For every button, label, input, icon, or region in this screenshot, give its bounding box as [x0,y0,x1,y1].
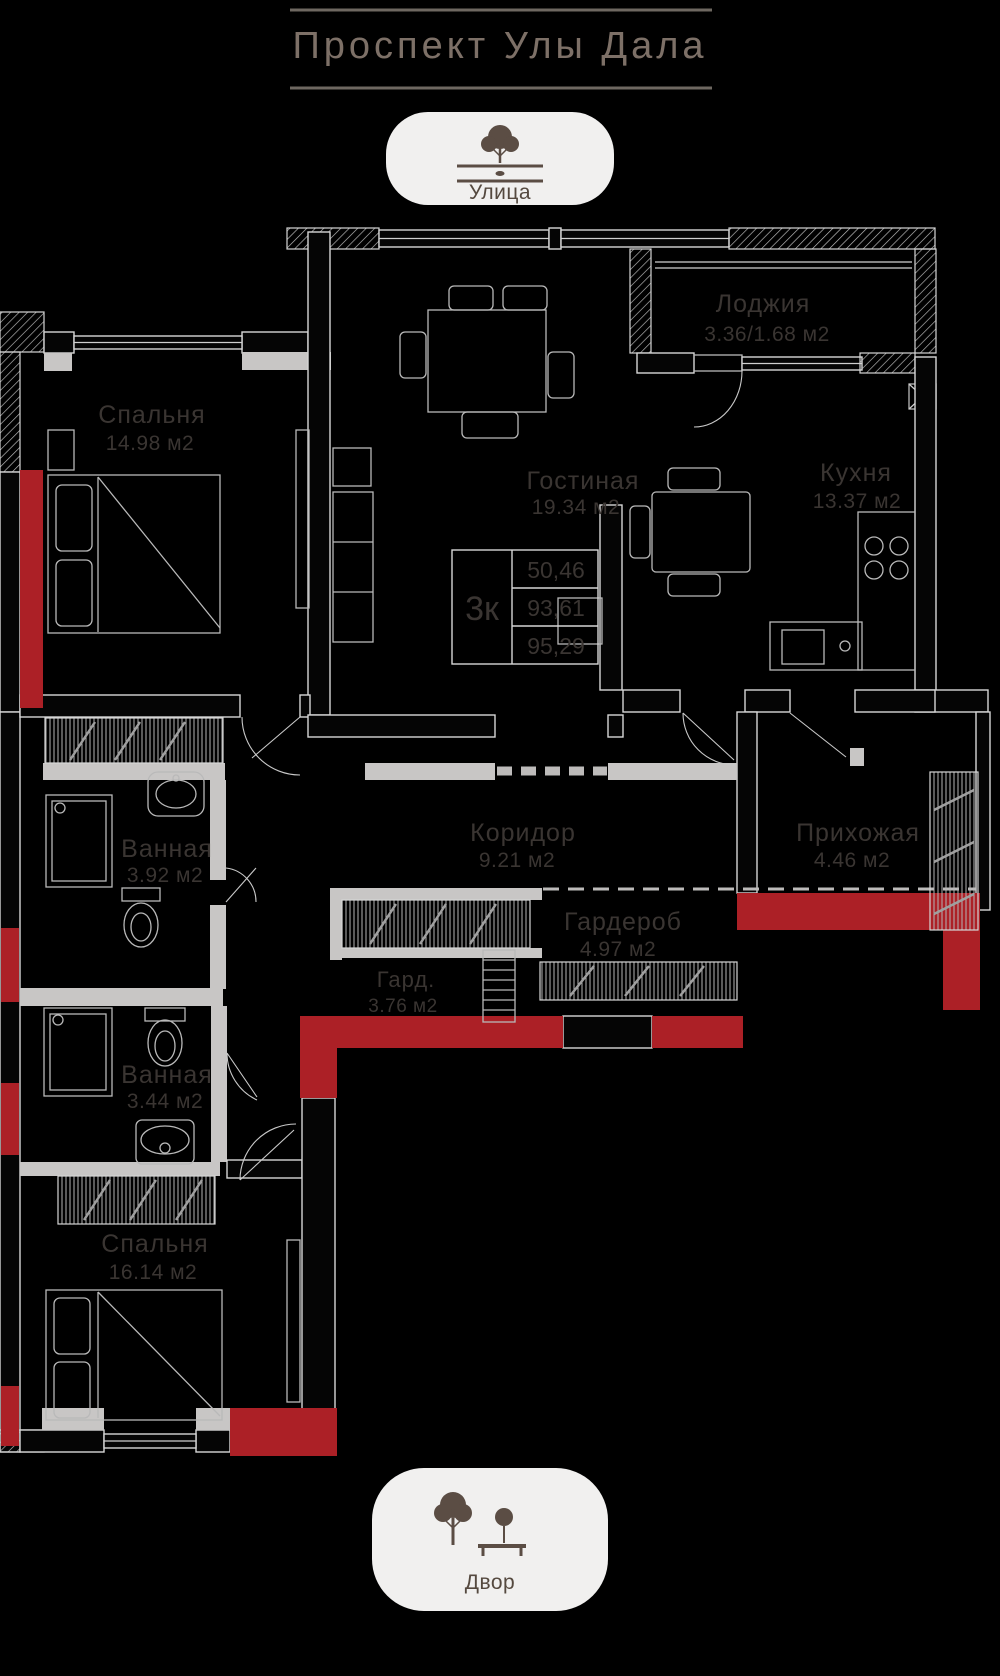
sofa-living [333,448,373,642]
closet-wardrobe-small [342,900,530,948]
room-name-bedroom1: Спальня [98,401,205,429]
room-area-bath2: 3.44 м2 [127,1090,203,1113]
toilet-bath2 [145,1008,185,1066]
room-area-bedroom2: 16.14 м2 [109,1261,198,1284]
header: Проспект Улы Дала [290,10,712,88]
door-bath2 [227,1053,257,1100]
room-area-hallway: 4.46 м2 [814,849,890,872]
closet-corridor-left [45,718,223,763]
basin-bath2 [136,1120,194,1164]
room-name-bath1: Ванная [121,835,213,863]
room-area-loggia: 3.36/1.68 м2 [704,323,830,346]
door-balcony [694,371,742,427]
room-name-living: Гостиная [527,467,640,495]
room-area-corridor: 9.21 м2 [479,849,555,872]
room-area-wardrobe: 4.97 м2 [580,938,656,961]
floor-plan-page: Проспект Улы Дала Улица [0,0,1000,1676]
yard-badge-label: Двор [465,1571,516,1594]
door-kitchen [683,713,735,765]
room-name-loggia: Лоджия [716,290,811,318]
page-title: Проспект Улы Дала [292,25,707,67]
kitchen-sink-counter [770,622,862,670]
bed-bedroom1 [48,475,220,633]
door-bath1 [226,868,256,902]
unit-area-value-3: 95,29 [527,633,585,659]
shelf-rack [483,950,515,1022]
shower-bath2 [44,1008,112,1096]
dresser-bedroom2 [287,1240,300,1402]
unit-area-value-1: 50,46 [527,557,585,583]
room-name-bath2: Ванная [121,1061,213,1089]
street-badge-label: Улица [469,181,531,204]
toilet-bath1 [122,888,160,947]
closet-hallway [930,772,978,930]
room-area-bedroom1: 14.98 м2 [106,432,195,455]
room-area-wardrobe-small: 3.76 м2 [368,996,437,1017]
dining-table-living [400,286,574,438]
door-entrance [790,713,846,757]
room-name-kitchen: Кухня [820,459,892,487]
floor-plan-canvas: Проспект Улы Дала Улица [0,0,1000,1676]
room-area-bath1: 3.92 м2 [127,864,203,887]
unit-type-label: 3к [465,590,500,628]
nightstand-bedroom1 [48,430,74,470]
door-bedroom1 [242,717,300,775]
room-name-wardrobe-small: Гард. [377,967,436,992]
room-name-hallway: Прихожая [796,819,920,847]
room-area-kitchen: 13.37 м2 [813,490,902,513]
shower-bath1 [46,795,112,887]
street-badge: Улица [386,112,614,205]
kitchen-table [630,468,750,596]
room-name-wardrobe: Гардероб [564,908,682,936]
unit-area-value-2: 93,61 [527,595,585,621]
unit-info-table: 3к 50,46 93,61 95,29 [452,550,598,664]
room-area-living: 19.34 м2 [532,496,621,519]
dresser-bedroom1 [296,430,309,608]
closet-wardrobe-big [540,962,737,1000]
yard-badge: Двор [372,1468,608,1611]
kitchen-counter-stove [858,512,915,670]
room-name-corridor: Коридор [470,819,576,847]
closet-bedroom2 [58,1176,215,1224]
room-name-bedroom2: Спальня [101,1230,208,1258]
bed-bedroom2 [46,1290,222,1420]
